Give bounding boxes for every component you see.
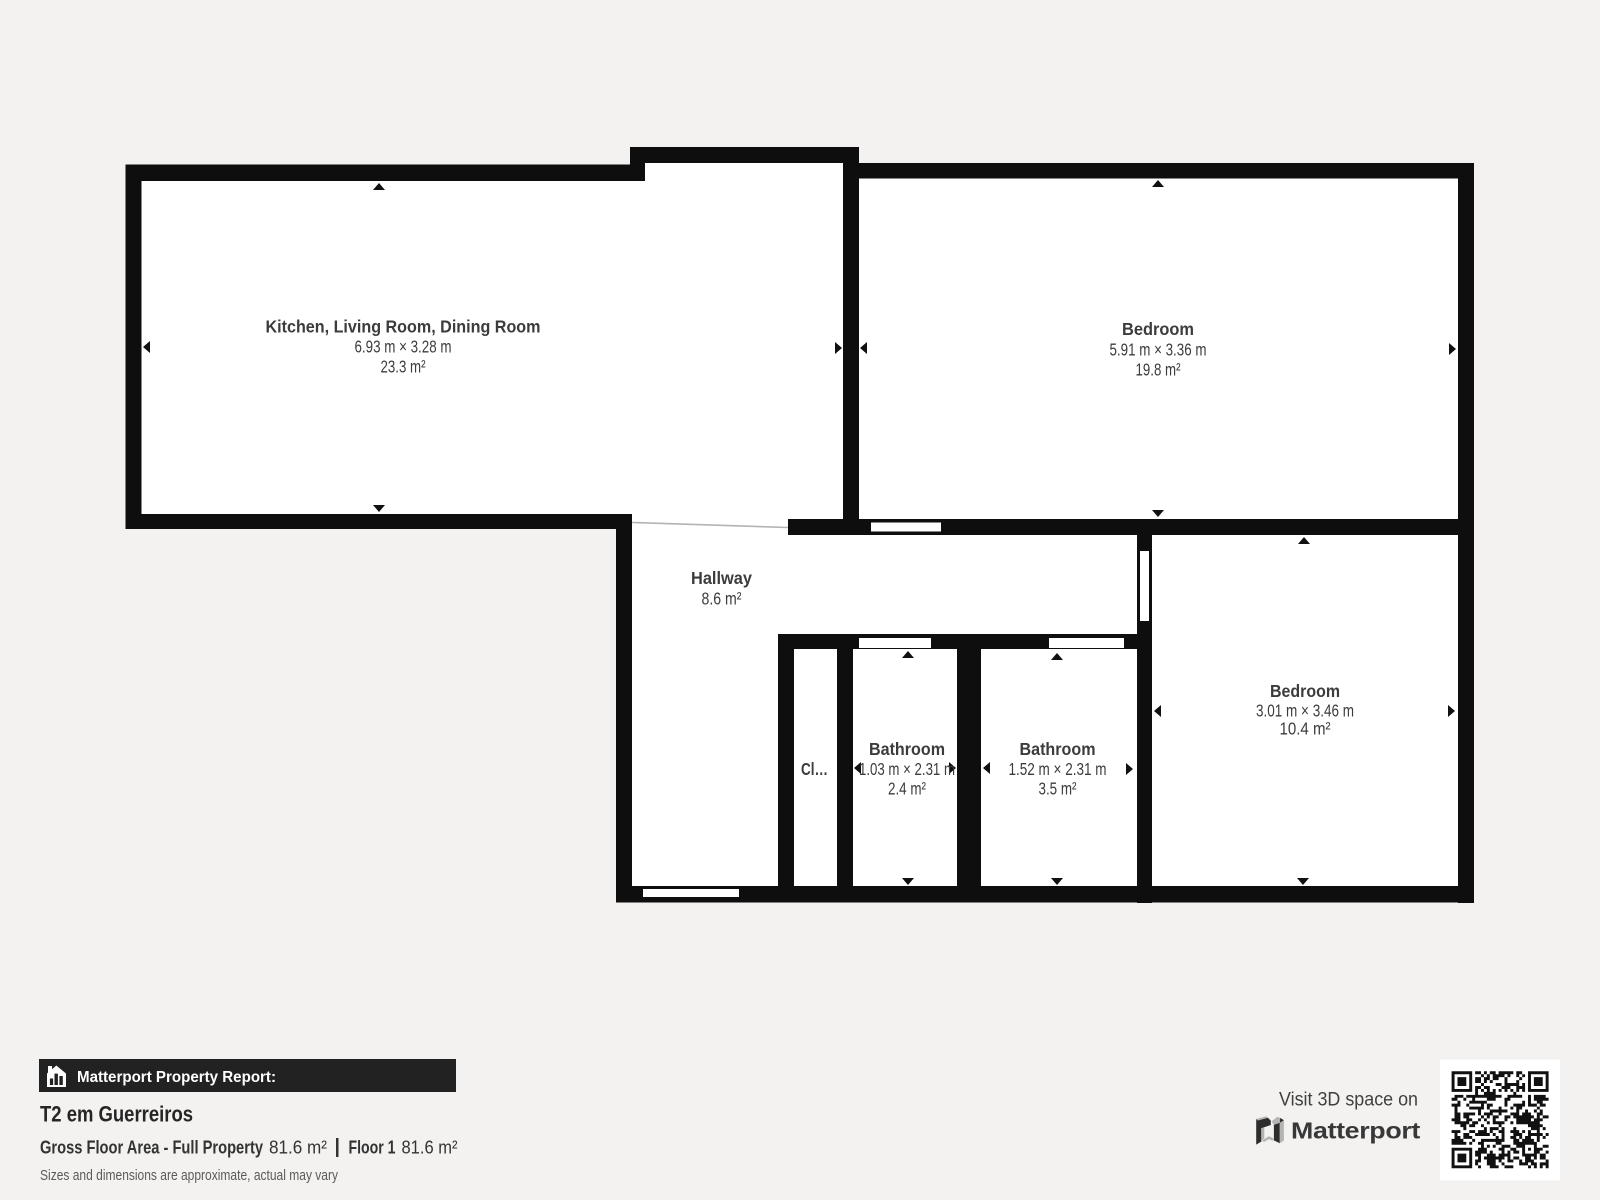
svg-text:Hallway: Hallway (691, 568, 752, 588)
svg-text:23.3 m²: 23.3 m² (381, 357, 426, 377)
svg-text:5.91 m × 3.36 m: 5.91 m × 3.36 m (1110, 340, 1207, 360)
svg-text:19.8 m²: 19.8 m² (1136, 360, 1181, 380)
svg-text:Bedroom: Bedroom (1270, 681, 1340, 701)
svg-text:Visit 3D space on: Visit 3D space on (1279, 1090, 1418, 1111)
svg-text:3.01 m × 3.46 m: 3.01 m × 3.46 m (1256, 701, 1354, 721)
svg-text:3.5 m²: 3.5 m² (1039, 779, 1077, 799)
svg-text:Bathroom: Bathroom (869, 739, 945, 759)
svg-text:Kitchen, Living Room, Dining R: Kitchen, Living Room, Dining Room (266, 317, 541, 337)
svg-text:81.6 m²: 81.6 m² (402, 1137, 458, 1158)
svg-text:Bedroom: Bedroom (1122, 319, 1194, 339)
svg-text:Floor 1: Floor 1 (349, 1137, 396, 1158)
svg-text:Matterport: Matterport (1291, 1118, 1421, 1144)
svg-text:Bathroom: Bathroom (1020, 739, 1096, 759)
svg-text:Matterport Property Report:: Matterport Property Report: (77, 1069, 276, 1086)
svg-text:1.52 m × 2.31 m: 1.52 m × 2.31 m (1009, 759, 1107, 779)
svg-text:Gross Floor Area - Full Proper: Gross Floor Area - Full Property (40, 1137, 264, 1158)
svg-text:T2 em Guerreiros: T2 em Guerreiros (40, 1102, 193, 1127)
svg-text:Cl…: Cl… (801, 759, 828, 779)
svg-text:10.4 m²: 10.4 m² (1280, 719, 1331, 739)
svg-text:1.03 m × 2.31 m: 1.03 m × 2.31 m (859, 759, 955, 779)
svg-text:81.6 m²: 81.6 m² (269, 1137, 327, 1158)
svg-text:2.4 m²: 2.4 m² (888, 779, 926, 799)
svg-text:Sizes and dimensions are appro: Sizes and dimensions are approximate, ac… (40, 1167, 338, 1184)
svg-text:6.93 m × 3.28 m: 6.93 m × 3.28 m (355, 337, 452, 357)
svg-text:8.6 m²: 8.6 m² (702, 589, 742, 609)
